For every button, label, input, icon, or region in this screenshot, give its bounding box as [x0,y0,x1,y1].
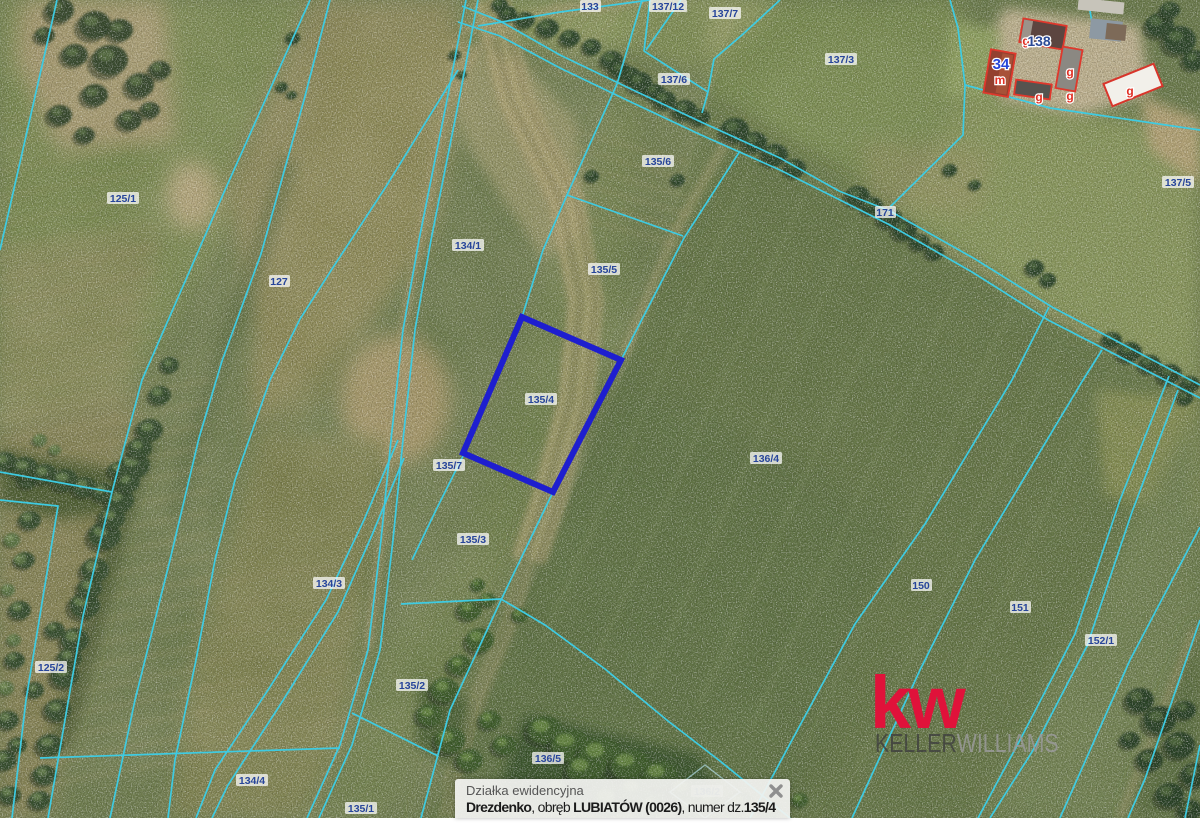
svg-text:137/5: 137/5 [1165,177,1191,189]
svg-text:g: g [1066,89,1073,103]
svg-text:135/6: 135/6 [645,156,671,168]
svg-text:136/4: 136/4 [753,453,779,465]
svg-text:136/5: 136/5 [535,753,561,765]
svg-text:g: g [1066,65,1073,79]
svg-text:138: 138 [1027,33,1051,49]
svg-text:g: g [1126,84,1133,98]
svg-text:125/1: 125/1 [110,193,136,205]
svg-text:135/3: 135/3 [460,534,486,546]
svg-text:134/3: 134/3 [316,578,342,590]
svg-text:135/4: 135/4 [528,394,554,406]
svg-text:127: 127 [270,276,288,288]
svg-text:m: m [995,73,1006,87]
svg-text:g: g [1035,90,1042,104]
svg-text:137/7: 137/7 [712,8,738,20]
svg-text:137/3: 137/3 [828,54,854,66]
svg-text:152/1: 152/1 [1088,635,1114,647]
svg-text:135/2: 135/2 [399,680,425,692]
svg-text:134/1: 134/1 [455,240,481,252]
svg-text:135/5: 135/5 [591,264,617,276]
svg-text:171: 171 [876,207,894,219]
svg-text:151: 151 [1011,602,1029,614]
svg-text:137/6: 137/6 [661,74,687,86]
svg-text:125/2: 125/2 [38,662,64,674]
svg-text:135/1: 135/1 [348,803,374,815]
svg-text:137/12: 137/12 [652,1,684,13]
svg-text:135/7: 135/7 [436,460,462,472]
svg-text:134/4: 134/4 [239,775,265,787]
svg-text:133: 133 [581,1,599,13]
svg-text:KELLERWILLIAMS: KELLERWILLIAMS [875,729,1059,759]
svg-text:34: 34 [993,56,1010,73]
svg-text:150: 150 [912,580,930,592]
